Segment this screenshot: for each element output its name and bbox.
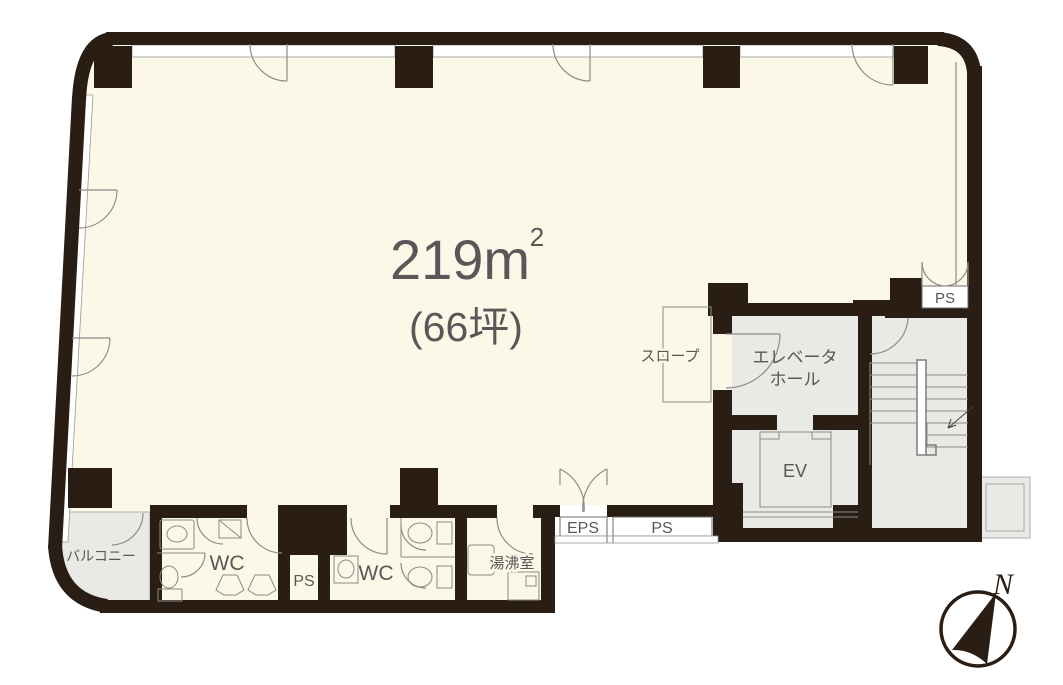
area-label-tsubo: (66坪) (409, 304, 523, 350)
wall-wc-kitchen-divider (455, 517, 467, 605)
wall-strip-top-1 (150, 505, 247, 518)
hall-door-opening (713, 334, 732, 390)
wall-ps-restroom-east (318, 555, 330, 605)
balcony-label: バルコニー (66, 548, 136, 564)
column-bottom-2 (400, 468, 438, 507)
wall-ev-divider-right (813, 415, 860, 430)
ps-restroom-label: PS (293, 573, 314, 590)
compass-north-label: N (992, 568, 1015, 601)
compass: N (941, 568, 1015, 666)
kitchenette-label: 湯沸室 (489, 555, 534, 572)
compass-needle (952, 593, 996, 664)
wall-ps-restroom-west (278, 555, 290, 605)
wall-eps-strip-2 (607, 505, 713, 517)
wall-kitchen-east (541, 505, 555, 613)
column-bottom-1 (68, 468, 112, 508)
ps-upper-right-label: PS (935, 290, 955, 307)
sill-under-shafts (555, 536, 718, 543)
wall-ev-west-foot (713, 483, 743, 532)
wall-ev-west-lower (713, 390, 732, 483)
wall-top (106, 32, 944, 45)
slope-label: スロープ (640, 348, 699, 365)
window-top-2 (433, 45, 703, 57)
wall-strip-top-3 (533, 505, 541, 518)
eps-label: EPS (567, 520, 599, 537)
column-top-4 (894, 46, 928, 84)
floor-plan-svg: 219m 2 (66坪) スロープ エレベータ ホール EV PS EPS PS… (0, 0, 1063, 685)
window-top-1 (132, 45, 395, 57)
wall-block-between-wc (278, 505, 347, 555)
wall-block-bottom (713, 528, 982, 542)
elevator-hall-label-2: ホール (770, 370, 821, 389)
column-top-1 (94, 46, 132, 88)
exterior-landing (980, 477, 1030, 538)
wall-ev-divider-left (732, 415, 777, 430)
stair-rail (917, 360, 926, 455)
area-label-sup: 2 (530, 222, 544, 252)
wc-left-label: WC (210, 552, 245, 575)
ev-label: EV (783, 461, 807, 481)
area-label-m2: 219m (390, 228, 530, 291)
column-top-2 (395, 46, 433, 88)
wall-right (967, 66, 982, 542)
wall-eps-strip-1 (541, 505, 560, 517)
column-top-3 (703, 46, 740, 88)
window-top-3 (740, 45, 894, 57)
floor-plan-page: 219m 2 (66坪) スロープ エレベータ ホール EV PS EPS PS… (0, 0, 1063, 685)
ps-lower-center-label: PS (651, 520, 672, 537)
wc-right-label: WC (359, 562, 394, 585)
wall-ps-upper-west (890, 278, 922, 308)
elevator-hall-label-1: エレベータ (753, 348, 838, 367)
